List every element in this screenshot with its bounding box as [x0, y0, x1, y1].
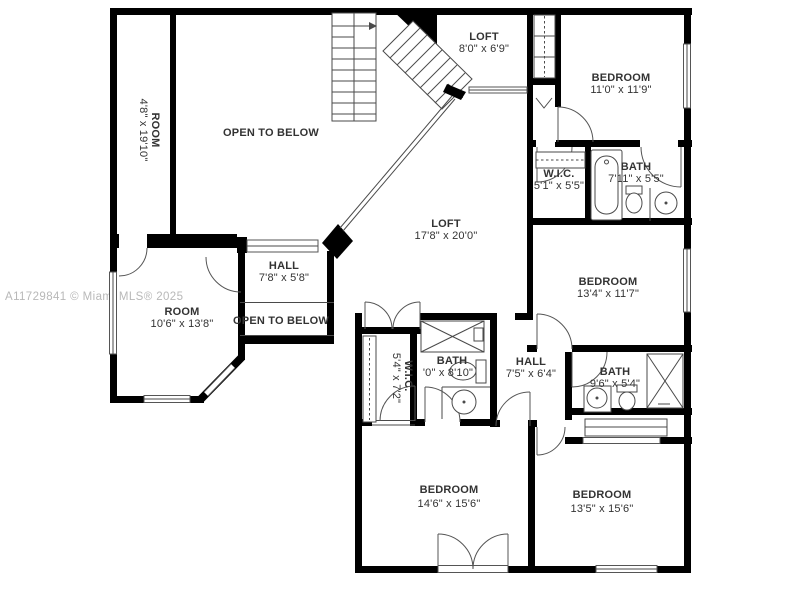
- svg-text:5'1" x 5'5": 5'1" x 5'5": [534, 180, 584, 192]
- label-bedroom-bl: BEDROOM: [420, 484, 479, 496]
- svg-text:8'0" x 6'9": 8'0" x 6'9": [459, 43, 509, 55]
- label-hall-left: HALL: [269, 260, 299, 272]
- svg-text:13'5" x 15'6": 13'5" x 15'6": [571, 503, 634, 515]
- door-bedroom-bl: [496, 392, 530, 426]
- label-bedroom-tr: BEDROOM: [592, 72, 651, 84]
- label-wic-c: W.I.C.: [402, 360, 414, 391]
- attic-access-chevron: [536, 98, 552, 108]
- svg-text:7'5" x 6'4": 7'5" x 6'4": [506, 368, 556, 380]
- svg-text:7'11" x 5'5": 7'11" x 5'5": [608, 173, 664, 185]
- door-french-right: [473, 534, 508, 569]
- door-bedroom-tr: [558, 107, 593, 142]
- label-bedroom-r: BEDROOM: [579, 276, 638, 288]
- svg-text:4'8" x 19'10": 4'8" x 19'10": [137, 99, 149, 162]
- svg-text:9'6" x 5'4": 9'6" x 5'4": [590, 378, 640, 390]
- label-wic-tr: W.I.C.: [543, 168, 574, 180]
- door-french-left: [438, 534, 473, 569]
- staircase: [332, 13, 472, 231]
- door-room-narrow: [119, 248, 147, 276]
- label-bath-c: BATH: [437, 355, 468, 367]
- label-bath-tr: BATH: [621, 161, 652, 173]
- shower-head-c: [474, 328, 483, 341]
- svg-text:5'4" x 7'2": 5'4" x 7'2": [390, 353, 402, 403]
- mls-watermark: A11729841 © Miami MLS® 2025: [5, 291, 183, 303]
- label-open-bridge: OPEN TO BELOW: [233, 315, 329, 327]
- door-loft-double-right: [393, 302, 420, 329]
- door-loft-double-left: [365, 302, 392, 329]
- label-room-bl: ROOM: [164, 306, 199, 318]
- svg-text:13'4" x 11'7": 13'4" x 11'7": [577, 288, 639, 300]
- floor-plan-svg: A11729841 © Miami MLS® 2025: [0, 0, 800, 600]
- svg-text:10'6" x 13'8": 10'6" x 13'8": [151, 318, 214, 330]
- svg-text:11'0" x 11'9": 11'0" x 11'9": [590, 84, 651, 96]
- label-room-narrow: ROOM: [149, 112, 161, 147]
- window-room-bl-bay: [206, 366, 233, 394]
- label-bedroom-br: BEDROOM: [573, 489, 632, 501]
- door-room-bl: [206, 257, 241, 292]
- label-bath-r: BATH: [600, 366, 631, 378]
- opening-closet-br: [583, 438, 660, 444]
- svg-text:7'8" x 5'8": 7'8" x 5'8": [259, 272, 309, 284]
- svg-text:17'8" x 20'0": 17'8" x 20'0": [415, 230, 478, 242]
- label-open-upper: OPEN TO BELOW: [223, 127, 319, 139]
- label-hall-c: HALL: [516, 356, 546, 368]
- svg-text:'0" x 8'10": '0" x 8'10": [423, 367, 473, 379]
- label-loft-main: LOFT: [431, 218, 461, 230]
- door-bedroom-r: [537, 314, 572, 349]
- label-loft-small: LOFT: [469, 31, 499, 43]
- door-bedroom-br: [537, 427, 565, 455]
- svg-text:14'6" x 15'6": 14'6" x 15'6": [418, 498, 481, 510]
- floor-plan-image: A11729841 © Miami MLS® 2025: [0, 0, 800, 600]
